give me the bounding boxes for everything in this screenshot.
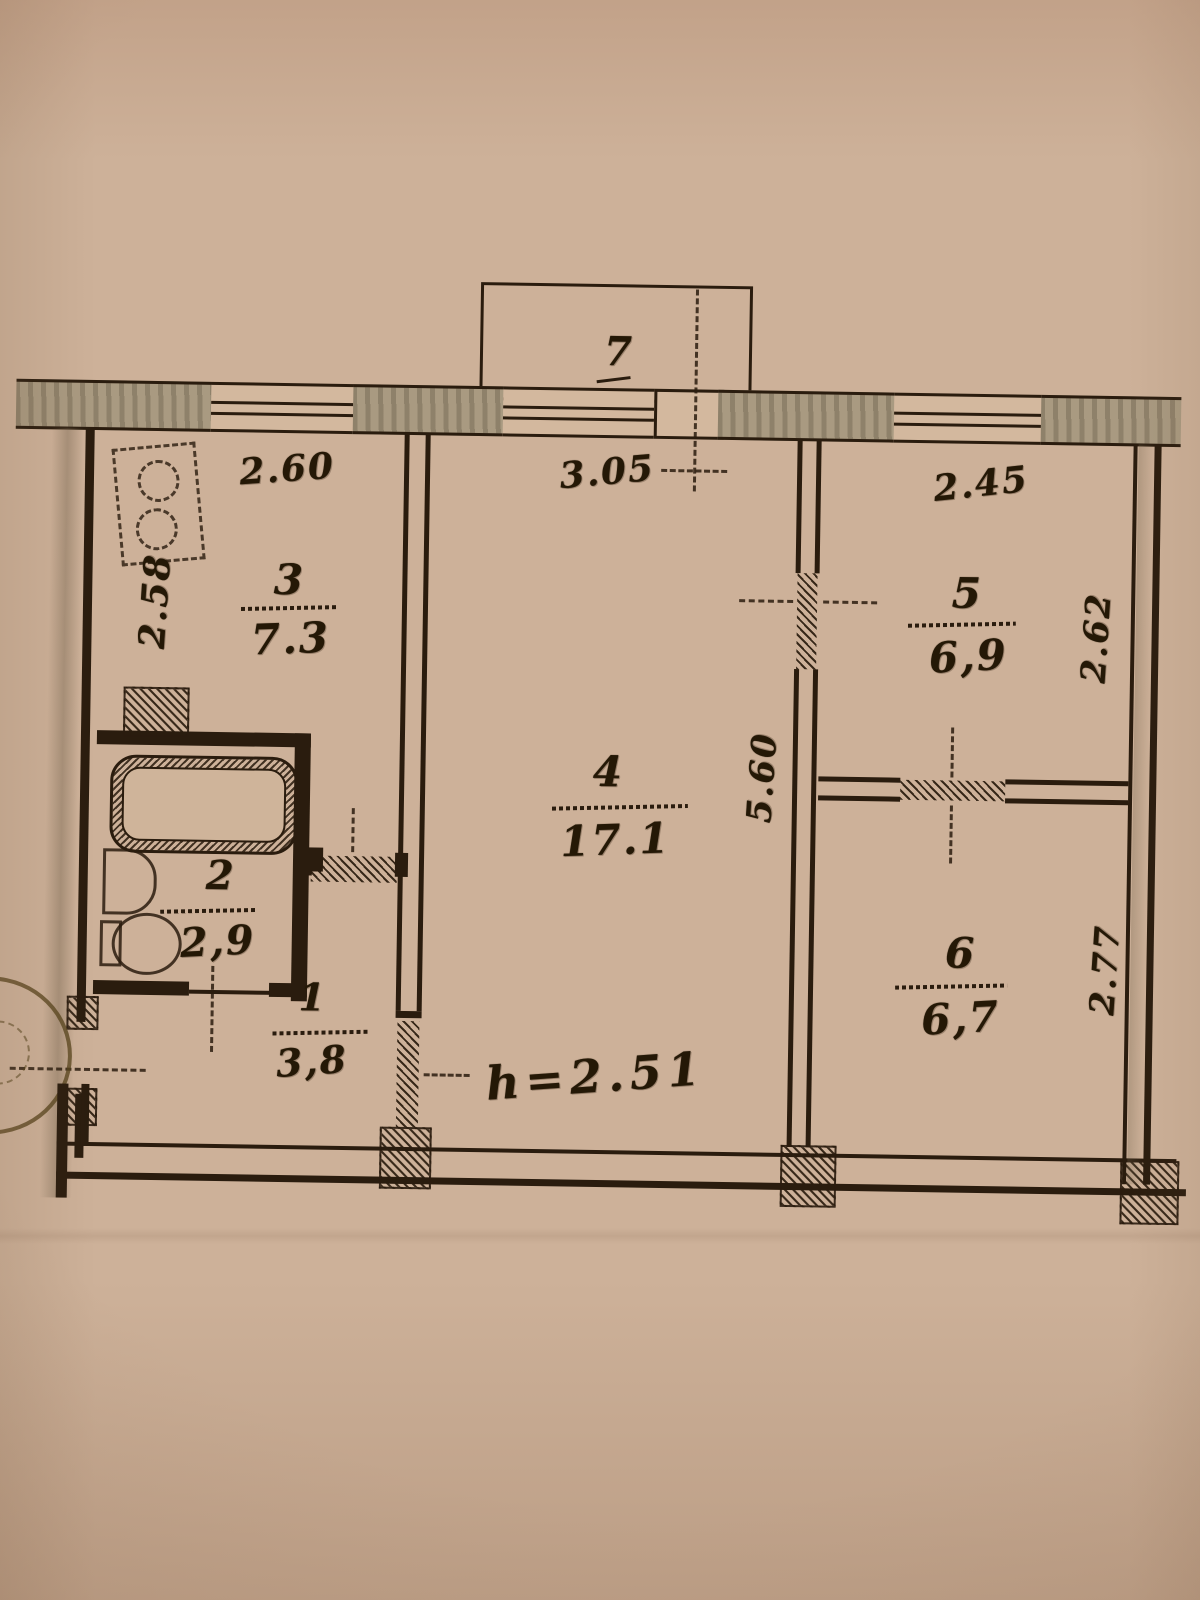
kitchen-window [211,382,354,434]
balcony-door-opening [654,389,725,440]
top-wall-right [1041,395,1182,447]
stove-burners [112,442,206,567]
room5-number: 5 [951,573,983,615]
bathroom-extension-line [210,966,214,1052]
dim-top-center: 3.05 [558,450,657,494]
stove-burner-top [136,458,182,504]
sink [102,848,157,915]
dim-right-upper-vertical: 2.62 [1077,591,1117,684]
stove-burner-bottom [134,507,180,553]
scanned-floor-plan-page: 7 [0,0,1200,1600]
kitchen-door-axis-dashes [351,808,355,852]
room5-fraction-bar [908,622,1016,628]
room6-area: 6,7 [920,996,1001,1042]
room3-area: 7.3 [250,617,331,662]
wall-kitchen-living [396,433,431,1011]
toilet-cistern [99,920,122,966]
wall-room5-room6-right [1005,779,1128,805]
balcony-number: 7 [604,332,634,372]
bottom-wall-outer-line [56,1172,1186,1197]
wall-room5-room6-opening [900,780,1005,802]
ventilation-shaft [123,687,190,738]
wall-living-rooms56-lower [787,669,819,1147]
room5-window [894,393,1042,445]
room6-number: 6 [945,932,977,974]
top-wall-mid-right [718,390,895,443]
bottom-left-corner-post-inner [81,1084,90,1146]
rooms56-door-dashes-left [739,599,793,603]
bathtub-inner-rim [121,766,286,843]
wall-living-rooms56-upper [796,439,822,573]
room4-number: 4 [592,751,624,793]
dim-top-right: 2.45 [932,461,1031,507]
hall-opening-dashes [424,1073,470,1077]
wall-kitchen-living-hatched-stub [396,1021,420,1127]
wall-kitchen-living-end-cap [396,1011,422,1018]
dim-center-vertical: 5.60 [742,731,782,824]
rooms56-door-dashes-right [823,600,877,604]
ceiling-height-note: h=2.51 [484,1045,707,1107]
room1-fraction-bar [272,1030,368,1036]
top-wall-mid-left [353,384,504,436]
room3-number: 3 [273,559,305,601]
kitchen-door-post-right [395,853,408,877]
dim-right-lower-vertical: 2.77 [1085,924,1125,1017]
dim-left-vertical: 2.58 [134,552,176,650]
wall-room5-room6-left [818,776,900,801]
bathtub [109,754,299,855]
room56-door-dashes-bottom [949,805,953,863]
dim-top-left: 2.60 [238,448,336,491]
balcony-dimension-tick [661,469,727,473]
bathroom-wall-bottom-left [93,980,189,996]
kitchen-door-opening-stub [311,855,397,882]
room4-fraction-bar [552,804,688,811]
bottom-left-corner-post [56,1084,69,1198]
bathroom-door-leaf [189,990,273,995]
floor-plan-drawing: 7 [0,0,1200,1600]
top-wall-left [16,379,212,432]
entry-door-jamb-top [66,996,99,1030]
wall-living-rooms56-opening [796,573,818,669]
bottom-column-center-wall [780,1145,837,1208]
room1-area: 3,8 [275,1040,350,1083]
room3-fraction-bar [241,605,337,611]
bottom-column-kitchen-wall [379,1127,432,1190]
room56-door-dashes-top [950,728,954,778]
room5-area: 6,9 [928,634,1009,680]
room2-area: 2,9 [179,920,257,964]
living-room-window [503,386,655,438]
bathroom-door-post [307,847,323,871]
room4-area: 17.1 [559,817,671,863]
room2-fraction-bar [160,908,256,914]
room6-fraction-bar [895,983,1007,989]
room1-number: 1 [298,978,327,1016]
room2-number: 2 [206,856,236,896]
bottom-wall-inner-line [57,1142,1177,1164]
